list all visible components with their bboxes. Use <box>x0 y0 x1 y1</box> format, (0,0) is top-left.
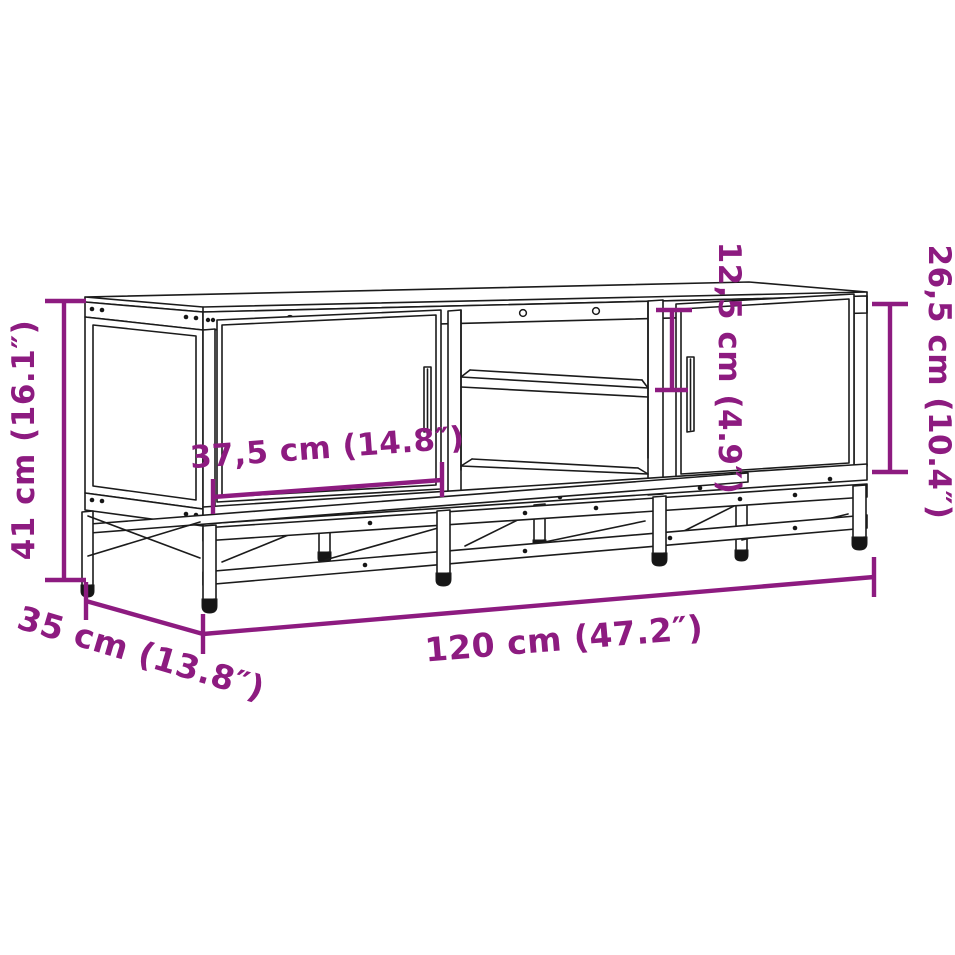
dimension-label-door-height: 26,5 cm (10.4″) <box>921 245 955 520</box>
compartment-floor <box>461 459 648 474</box>
left-door <box>217 310 441 502</box>
right-door <box>676 294 854 479</box>
middle-shelf <box>461 370 648 397</box>
dimension-overall-depth: 35 cm (13.8″) <box>13 582 269 708</box>
left-side-panel <box>85 302 203 526</box>
dimension-door-height: 26,5 cm (10.4″) <box>872 245 955 520</box>
dimension-label-shelf-opening-height: 12,5 cm (4.9″) <box>711 242 747 495</box>
diagram-stage: 41 cm (16.1″) 37,5 cm (14.8″) 12,5 cm (4… <box>0 0 955 955</box>
furniture-dimension-diagram: 41 cm (16.1″) 37,5 cm (14.8″) 12,5 cm (4… <box>0 0 955 955</box>
middle-compartment <box>461 301 648 474</box>
dimension-label-overall-height: 41 cm (16.1″) <box>6 320 42 561</box>
dimension-overall-height: 41 cm (16.1″) <box>6 301 86 580</box>
dimension-label-overall-width: 120 cm (47.2″) <box>423 607 704 669</box>
right-door-handle <box>687 357 694 432</box>
